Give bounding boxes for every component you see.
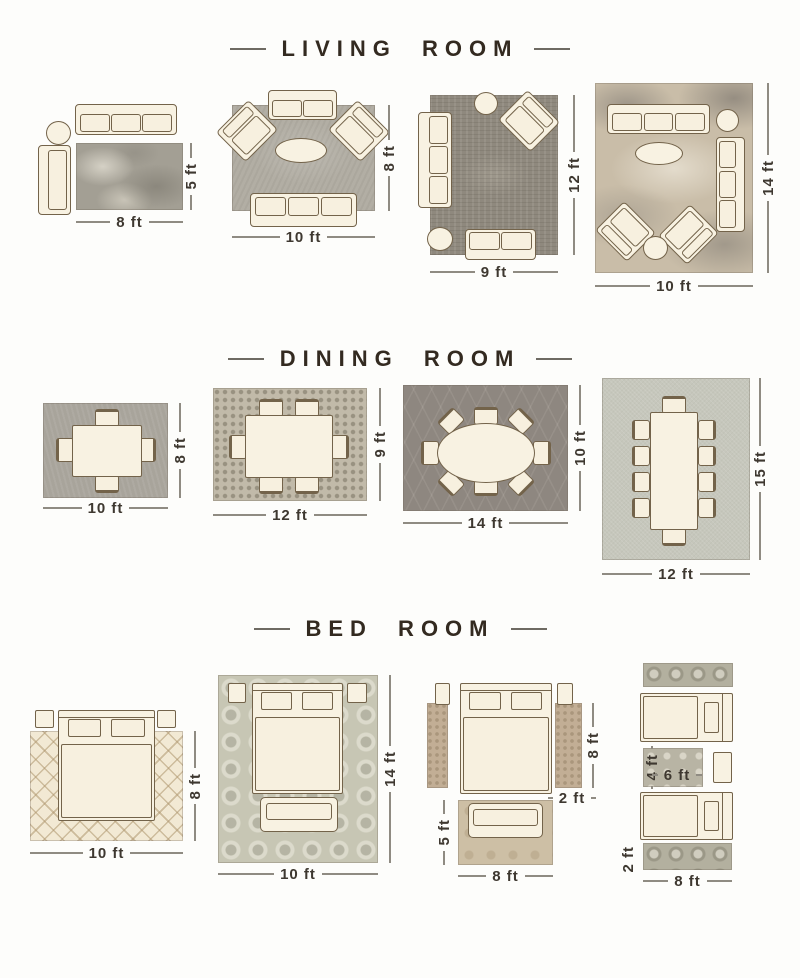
width-dimension: 10 ft [30, 845, 183, 861]
runner-height-dimension: 8 ft [585, 703, 601, 788]
headboard [253, 684, 342, 691]
dimension-text: 2 ft [559, 790, 586, 807]
dimension-line [458, 875, 486, 876]
dimension-line [595, 285, 650, 286]
dimension-line [43, 507, 82, 508]
dining-chair [632, 420, 650, 440]
dimension-text: 10 ft [286, 229, 322, 246]
sofa [250, 193, 357, 227]
dimension-line [525, 875, 553, 876]
sofa-vertical [716, 137, 745, 232]
pillow [469, 692, 501, 710]
runner-width-dimension: 2 ft [548, 790, 596, 806]
dimension-line [696, 774, 702, 775]
section-title-bed-room: BED ROOM [306, 616, 495, 642]
dimension-text: 8 ft [585, 732, 602, 759]
sofa-cushion [675, 113, 705, 130]
dimension-line [213, 514, 266, 515]
nightstand [557, 683, 573, 705]
dimension-text: 8 ft [187, 773, 204, 800]
sofa-cushion [255, 197, 286, 216]
dimension-text: 10 ft [89, 845, 125, 862]
dimension-text: 15 ft [752, 451, 769, 487]
dining-chair [259, 476, 283, 494]
coffee-table [635, 142, 683, 165]
sofa-cushion [719, 200, 736, 227]
dimension-line [388, 105, 389, 140]
dimension-text: 10 ft [656, 278, 692, 295]
dimension-line [389, 792, 390, 863]
dimension-line [194, 731, 195, 768]
dimension-text: 10 ft [572, 430, 589, 466]
twin-bed [640, 693, 733, 742]
bed [252, 683, 343, 794]
dimension-text: 5 ft [183, 163, 200, 190]
width-dimension: 10 ft [43, 500, 168, 516]
height-dimension: 12 ft [566, 95, 582, 255]
dimension-text: 2 ft [620, 846, 637, 873]
title-dash-left [230, 48, 266, 50]
sofa-cushion [612, 113, 642, 130]
width-dimension: 10 ft [595, 278, 753, 294]
dimension-text: 8 ft [492, 868, 519, 885]
pillow [111, 719, 144, 737]
runner-height-dimension: 2 ft [620, 841, 636, 872]
runner-rug [427, 703, 448, 788]
nightstand [228, 683, 246, 703]
dimension-line [314, 514, 367, 515]
dimension-line [643, 880, 668, 881]
dining-chair [632, 498, 650, 518]
section-title-dining-room: DINING ROOM [280, 346, 521, 372]
dimension-text: 12 ft [566, 157, 583, 193]
duvet [463, 717, 549, 791]
sofa-cushion [142, 114, 172, 132]
pillow [704, 801, 719, 830]
dimension-line [443, 800, 444, 814]
rug-8x5 [76, 143, 183, 210]
dimension-text: 9 ft [481, 264, 508, 281]
dimension-text: 5 ft [436, 819, 453, 846]
dimension-line [579, 471, 580, 511]
sofa-vertical [418, 112, 452, 208]
headboard [461, 684, 551, 691]
pillow [302, 692, 333, 710]
dimension-line [179, 469, 180, 498]
dimension-line [379, 388, 380, 426]
dimension-text: 14 ft [468, 515, 504, 532]
sofa-cushion [303, 100, 332, 117]
sofa-cushion [719, 171, 736, 198]
sofa-cushion [469, 232, 499, 249]
dimension-line [190, 143, 191, 158]
section-header-dining-room: DINING ROOM [0, 346, 800, 372]
bed [58, 710, 155, 821]
dimension-text: 10 ft [88, 500, 124, 517]
height-dimension: 14 ft [760, 83, 776, 273]
sofa-cushion [111, 114, 141, 132]
sofa [75, 104, 177, 135]
dimension-line [513, 271, 558, 272]
dining-table [72, 425, 142, 477]
loveseat [268, 90, 337, 120]
sofa-cushion [321, 197, 352, 216]
duvet [255, 717, 340, 791]
armchair [38, 145, 71, 215]
pillow [68, 719, 101, 737]
width-dimension: 12 ft [213, 507, 367, 523]
dining-chair [331, 435, 349, 459]
dimension-line [76, 221, 110, 222]
dimension-line [194, 804, 195, 841]
dimension-line [190, 195, 191, 210]
dimension-text: 14 ft [382, 751, 399, 787]
dimension-line [591, 797, 596, 798]
dimension-line [652, 774, 658, 775]
dimension-line [509, 522, 568, 523]
dimension-line [430, 271, 475, 272]
duvet [643, 795, 698, 837]
dimension-line [30, 852, 83, 853]
twin-bed [640, 792, 733, 840]
dining-table [650, 412, 698, 530]
sofa [607, 104, 710, 134]
dimension-line [149, 221, 183, 222]
dimension-line [327, 236, 375, 237]
bench-cushion [473, 809, 537, 826]
dimension-line [179, 403, 180, 432]
dimension-line [759, 492, 760, 560]
dimension-line [130, 852, 183, 853]
dimension-line [573, 198, 574, 255]
dimension-line [767, 201, 768, 273]
dining-chair [698, 498, 716, 518]
width-dimension: 10 ft [232, 229, 375, 245]
dimension-line [573, 95, 574, 152]
bench-cushion [266, 803, 333, 820]
side-table [474, 92, 498, 115]
armchair-cushion [48, 150, 67, 210]
sofa-cushion [429, 116, 449, 144]
sofa-cushion [429, 176, 449, 204]
dimension-line [767, 83, 768, 155]
loveseat [465, 229, 536, 260]
dimension-line [707, 880, 732, 881]
dimension-text: 8 ft [381, 145, 398, 172]
dimension-line [700, 573, 750, 574]
dimension-text: 8 ft [172, 437, 189, 464]
nightstand [713, 752, 732, 783]
pillow [704, 702, 719, 732]
title-dash-left [228, 358, 264, 360]
width-dimension: 9 ft [430, 264, 558, 280]
dimension-line [322, 873, 378, 874]
title-dash-right [536, 358, 572, 360]
runner-width-dimension: 8 ft [643, 873, 732, 889]
dining-chair [662, 528, 686, 546]
dimension-text: 9 ft [372, 431, 389, 458]
dimension-line [379, 463, 380, 501]
dining-chair [632, 472, 650, 492]
dimension-line [388, 176, 389, 211]
sofa-cushion [501, 232, 531, 249]
accent-rug-width-dimension: 6 ft [652, 767, 702, 783]
dimension-line [579, 385, 580, 425]
pillow [511, 692, 543, 710]
nightstand [35, 710, 54, 728]
nightstand [435, 683, 450, 705]
side-table [716, 109, 739, 132]
height-dimension: 14 ft [382, 675, 398, 863]
nightstand [157, 710, 176, 728]
dimension-line [443, 851, 444, 865]
headboard [722, 694, 723, 741]
width-dimension: 8 ft [76, 214, 183, 230]
nightstand [347, 683, 367, 703]
height-dimension: 8 ft [187, 731, 203, 841]
dimension-line [129, 507, 168, 508]
bench [468, 803, 543, 838]
dining-chair [698, 446, 716, 466]
sofa-cushion [644, 113, 674, 130]
title-dash-left [254, 628, 290, 630]
dining-chair [533, 441, 551, 465]
title-dash-right [511, 628, 547, 630]
ottoman [643, 236, 668, 260]
dimension-line [602, 573, 652, 574]
dimension-line [403, 522, 462, 523]
dimension-text: 10 ft [280, 866, 316, 883]
dimension-line [389, 675, 390, 746]
runner-rug [643, 663, 733, 687]
dimension-line [651, 786, 652, 789]
dimension-line [698, 285, 753, 286]
section-title-living-room: LIVING ROOM [282, 36, 519, 62]
dining-chair [295, 476, 319, 494]
dimension-text: 8 ft [674, 873, 701, 890]
height-dimension: 8 ft [381, 105, 397, 211]
accent-rug-height-dimension: 5 ft [436, 800, 452, 865]
bed [460, 683, 552, 794]
dining-chair [698, 472, 716, 492]
section-header-living-room: LIVING ROOM [0, 36, 800, 62]
dimension-line [759, 378, 760, 446]
width-dimension: 14 ft [403, 515, 568, 531]
sofa-cushion [288, 197, 319, 216]
duvet [61, 744, 152, 818]
ottoman [427, 227, 453, 251]
dining-table [245, 415, 333, 478]
headboard [59, 711, 154, 718]
width-dimension: 12 ft [602, 566, 750, 582]
duvet [643, 696, 698, 739]
section-header-bed-room: BED ROOM [0, 616, 800, 642]
height-dimension: 8 ft [172, 403, 188, 498]
title-dash-right [534, 48, 570, 50]
dimension-text: 12 ft [658, 566, 694, 583]
height-dimension: 15 ft [752, 378, 768, 560]
dimension-line [592, 764, 593, 788]
dimension-line [592, 703, 593, 727]
rug-size-guide: LIVING ROOM 8 ft 5 ft [0, 0, 800, 978]
headboard [722, 793, 723, 839]
dining-table-oval [437, 423, 535, 483]
dimension-text: 12 ft [272, 507, 308, 524]
sofa-cushion [719, 141, 736, 168]
sofa-cushion [80, 114, 110, 132]
coffee-table [275, 138, 327, 163]
bench [260, 797, 338, 832]
dimension-line [218, 873, 274, 874]
dimension-line [548, 797, 553, 798]
runner-rug [555, 703, 582, 788]
accent-rug-width-dimension: 8 ft [458, 868, 553, 884]
dimension-text: 6 ft [664, 767, 691, 784]
runner-rug [643, 843, 732, 870]
dining-chair [95, 475, 119, 493]
dimension-line [651, 746, 652, 749]
side-table [46, 121, 71, 145]
sofa-cushion [272, 100, 301, 117]
height-dimension: 9 ft [372, 388, 388, 501]
pillow [261, 692, 292, 710]
width-dimension: 10 ft [218, 866, 378, 882]
height-dimension: 10 ft [572, 385, 588, 511]
dining-chair [698, 420, 716, 440]
dimension-text: 8 ft [116, 214, 143, 231]
height-dimension: 5 ft [183, 143, 199, 210]
dining-chair [632, 446, 650, 466]
sofa-cushion [429, 146, 449, 174]
dimension-line [232, 236, 280, 237]
dimension-text: 14 ft [760, 160, 777, 196]
